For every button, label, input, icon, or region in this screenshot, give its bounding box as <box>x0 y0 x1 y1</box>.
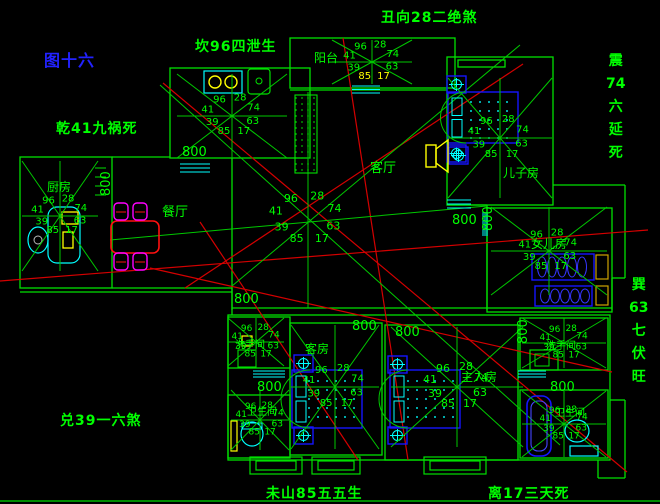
compass-east-char: 延 <box>609 119 623 142</box>
compass-east-char: 死 <box>609 142 623 165</box>
star-number: 39 <box>275 221 289 234</box>
single-bed-spring <box>581 289 590 303</box>
compass-sitting-label: 未山85五五生 <box>266 483 362 503</box>
star-number: 28 <box>337 363 350 374</box>
dining-table <box>111 221 159 253</box>
single-bed-spring <box>561 289 570 303</box>
star-number: 74 <box>328 202 342 215</box>
room-label-washroom-a: 洗手间 <box>235 338 265 351</box>
star-number: 28 <box>374 40 387 51</box>
nightstand <box>596 286 608 305</box>
compass-west-label: 兑39一六煞 <box>60 410 141 430</box>
step-tab <box>318 461 354 470</box>
tv-speaker <box>436 140 448 172</box>
star-number: 74 <box>576 332 588 342</box>
room-label-son: 儿子房 <box>503 165 539 180</box>
star-number: 96 <box>284 192 298 205</box>
star-number: 85 <box>248 427 259 437</box>
star-number: 96 <box>480 116 493 127</box>
floorplan-viewport[interactable]: 9628417439638517962841743963851796284174… <box>0 0 660 504</box>
room-label-bathroom-b: 卫生间 <box>247 405 277 418</box>
star-number: 39 <box>472 140 485 151</box>
star-number: 85 <box>218 126 231 137</box>
star-number: 74 <box>516 124 529 135</box>
star-number: 41 <box>540 414 551 424</box>
compass-northwest-label: 乾41九祸死 <box>56 118 137 138</box>
compass-facing-label: 丑向28二绝煞 <box>381 7 477 27</box>
room-label-washroom-c: 洗手间 <box>546 339 576 352</box>
star-number: 39 <box>307 389 320 400</box>
compass-southeast-char: 旺 <box>632 366 646 389</box>
dimension-label: 800 <box>234 292 259 307</box>
star-number: 39 <box>428 387 442 400</box>
single-bed-spring <box>551 289 560 303</box>
compass-southeast-char: 巽 <box>632 274 646 297</box>
star-number: 41 <box>423 373 437 386</box>
compass-southeast-char: 伏 <box>632 343 646 366</box>
star-number: 17 <box>65 225 78 236</box>
compass-east-label: 震 74 六 延 死 <box>606 50 625 165</box>
star-number: 17 <box>568 431 579 441</box>
sink <box>248 69 270 94</box>
star-number: 63 <box>326 219 340 232</box>
dimension-label: 800 <box>452 213 477 228</box>
stove-burner <box>209 76 221 88</box>
dimension-label: 800 <box>257 380 282 395</box>
figure-title: 图十六 <box>44 47 95 71</box>
star-number: 41 <box>236 410 247 420</box>
star-number: 17 <box>377 71 390 82</box>
compass-southeast-label: 巽 63 七 伏 旺 <box>629 274 648 389</box>
star-number: 28 <box>310 189 324 202</box>
compass-southeast-char: 63 <box>629 297 648 320</box>
star-number: 74 <box>351 373 364 384</box>
dimension-label: 800 <box>182 145 207 160</box>
compass-east-char: 六 <box>609 96 623 119</box>
kitchen-round-sink <box>28 227 48 253</box>
star-number: 74 <box>268 331 280 341</box>
star-number: 41 <box>343 51 356 62</box>
star-number: 63 <box>350 388 363 399</box>
compass-southeast-char: 七 <box>632 320 646 343</box>
nightstand <box>596 255 608 279</box>
star-number: 96 <box>42 195 55 206</box>
room-label-living: 客厅 <box>370 160 396 176</box>
star-number: 17 <box>237 126 250 137</box>
stove-burner <box>225 76 237 88</box>
compass-east-char: 74 <box>606 73 625 96</box>
star-number: 74 <box>386 49 399 60</box>
dimension-label: 800 <box>395 325 420 340</box>
star-number: 17 <box>315 232 329 245</box>
star-number: 85 <box>358 71 371 82</box>
single-bed-spring <box>571 289 580 303</box>
dimension-label: 800 <box>481 206 496 231</box>
star-number: 41 <box>269 204 283 217</box>
room-label-kitchen: 厨房 <box>47 179 71 194</box>
star-number: 17 <box>264 427 275 437</box>
star-number: 85 <box>290 232 304 245</box>
star-number: 85 <box>46 225 59 236</box>
star-number: 85 <box>441 397 455 410</box>
cabinet <box>295 95 317 173</box>
star-number: 28 <box>502 114 515 125</box>
kitchen-round-sink <box>34 236 42 244</box>
dimension-label: 800 <box>550 380 575 395</box>
star-number: 41 <box>518 239 531 250</box>
star-number: 74 <box>247 103 260 114</box>
sink <box>256 78 262 84</box>
dimension-label: 800 <box>99 171 114 196</box>
bed-pillow <box>296 401 306 422</box>
compass-south-label: 离17三天死 <box>488 483 569 503</box>
star-number: 85 <box>485 149 498 160</box>
room-label-balcony: 阳台 <box>314 50 338 65</box>
room-label-guest: 客房 <box>305 341 329 356</box>
star-number: 85 <box>320 398 333 409</box>
step-tab <box>430 461 480 470</box>
compass-east-char: 震 <box>609 50 623 73</box>
single-bed-spring <box>541 289 550 303</box>
compass-north-label: 坎96四泄生 <box>195 36 276 56</box>
room-label-bathroom-d: 卫生间 <box>555 406 585 419</box>
star-number: 17 <box>463 397 477 410</box>
dimension-label: 800 <box>352 319 377 334</box>
star-number: 17 <box>506 149 519 160</box>
star-number: 85 <box>552 431 563 441</box>
room-label-dining: 餐厅 <box>162 204 188 220</box>
dimension-labels-layer: 800800800800800800800800800800 <box>99 145 575 395</box>
star-number: 41 <box>468 126 481 137</box>
star-number: 63 <box>515 139 528 150</box>
star-number: 41 <box>303 375 316 386</box>
star-number: 41 <box>201 104 214 115</box>
star-number: 74 <box>74 203 87 214</box>
room-label-daughter: 女儿房 <box>531 236 567 251</box>
star-number: 96 <box>315 365 328 376</box>
star-number: 17 <box>554 261 567 272</box>
star-number: 28 <box>62 194 75 205</box>
tv-speaker <box>426 145 436 167</box>
star-number: 96 <box>436 362 450 375</box>
room-label-master: 主人房 <box>461 369 497 384</box>
step-tab <box>256 461 296 470</box>
bed-pillow <box>452 120 462 138</box>
dimension-label: 800 <box>516 319 531 344</box>
star-number: 96 <box>213 95 226 106</box>
star-number: 41 <box>31 205 44 216</box>
star-number: 17 <box>341 398 354 409</box>
star-number: 85 <box>535 261 548 272</box>
star-number: 96 <box>354 41 367 52</box>
star-number: 28 <box>234 93 247 104</box>
